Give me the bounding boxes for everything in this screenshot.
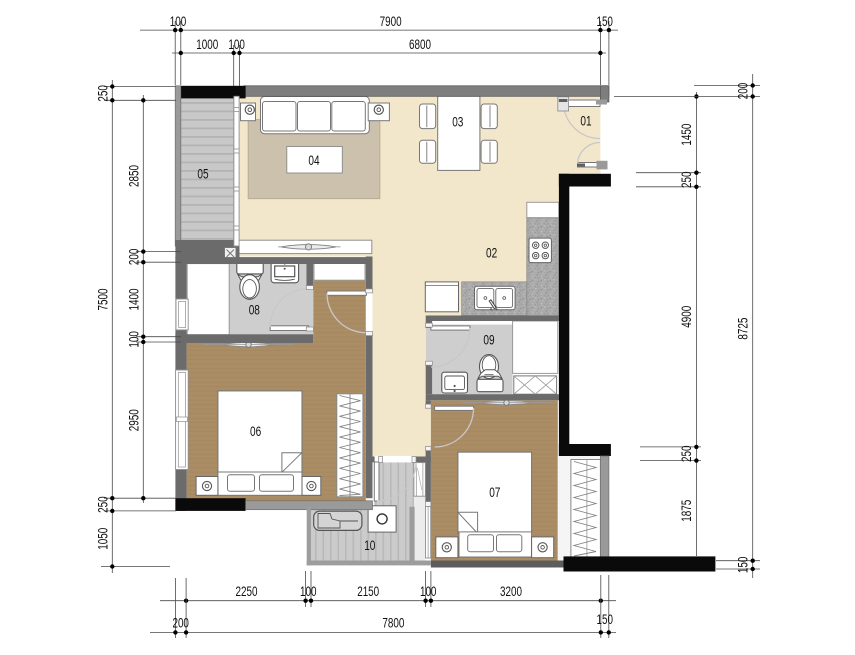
svg-text:7500: 7500 (96, 289, 111, 311)
svg-text:200: 200 (172, 616, 189, 631)
svg-text:10: 10 (364, 537, 375, 553)
svg-text:2950: 2950 (127, 409, 142, 431)
svg-text:8725: 8725 (736, 318, 751, 340)
svg-text:01: 01 (580, 113, 591, 129)
svg-text:100: 100 (300, 584, 317, 599)
svg-text:100: 100 (228, 37, 245, 52)
svg-text:250: 250 (679, 446, 694, 463)
svg-text:4900: 4900 (679, 306, 694, 328)
svg-text:1450: 1450 (679, 124, 694, 146)
svg-text:250: 250 (679, 172, 694, 189)
svg-text:02: 02 (486, 245, 497, 261)
svg-text:2150: 2150 (357, 584, 379, 599)
svg-text:7800: 7800 (382, 616, 404, 631)
svg-text:2250: 2250 (236, 584, 258, 599)
svg-text:6800: 6800 (409, 37, 431, 52)
svg-text:1000: 1000 (196, 37, 218, 52)
svg-text:03: 03 (452, 114, 463, 130)
svg-text:05: 05 (197, 166, 208, 182)
svg-text:09: 09 (483, 332, 494, 348)
svg-text:100: 100 (127, 331, 142, 348)
svg-text:7900: 7900 (380, 14, 402, 29)
svg-text:150: 150 (596, 14, 613, 29)
svg-text:1875: 1875 (679, 500, 694, 522)
svg-text:150: 150 (597, 612, 614, 627)
svg-text:2850: 2850 (127, 165, 142, 187)
svg-text:100: 100 (170, 14, 187, 29)
svg-text:100: 100 (420, 584, 437, 599)
svg-text:250: 250 (96, 85, 111, 102)
svg-text:06: 06 (250, 423, 261, 439)
svg-text:1400: 1400 (127, 289, 142, 311)
svg-text:3200: 3200 (500, 584, 522, 599)
svg-text:1050: 1050 (96, 528, 111, 550)
svg-text:250: 250 (96, 496, 111, 512)
svg-text:200: 200 (127, 249, 142, 266)
svg-text:07: 07 (489, 484, 500, 500)
svg-text:200: 200 (736, 83, 751, 100)
svg-text:04: 04 (308, 152, 319, 168)
svg-text:08: 08 (249, 302, 260, 318)
svg-text:150: 150 (736, 557, 751, 574)
